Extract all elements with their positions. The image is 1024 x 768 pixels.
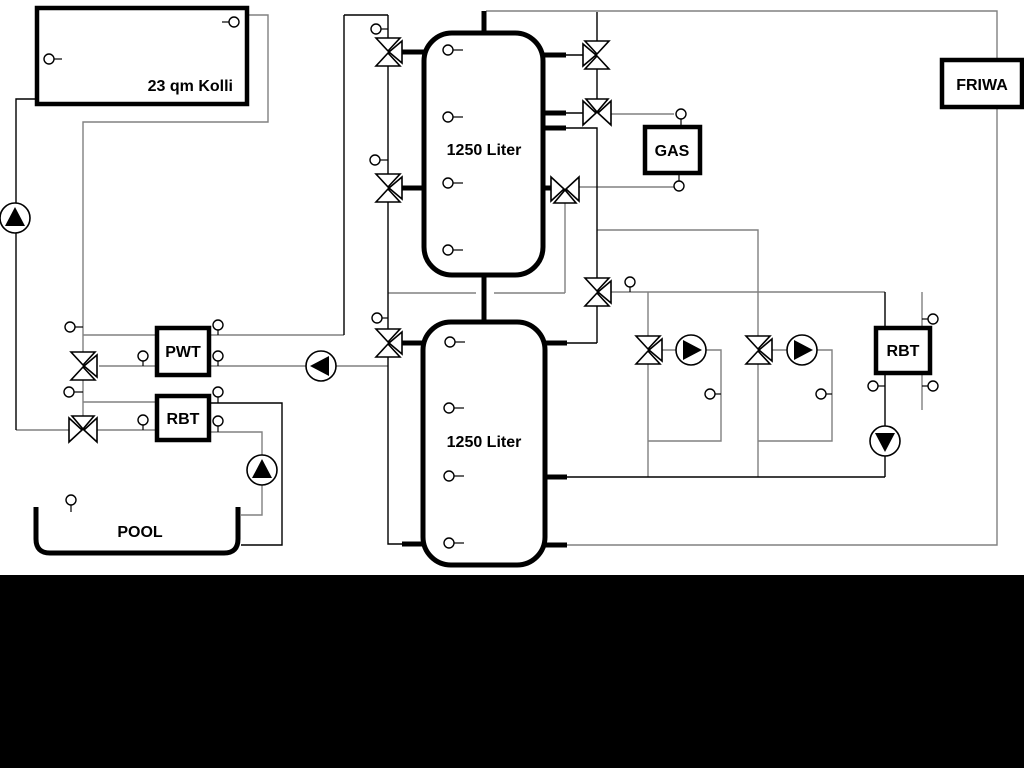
valve-gas-return: [551, 177, 579, 203]
sensor-pwt-left: [138, 351, 148, 366]
pipe-heating-branches: [648, 292, 832, 477]
sensor-rbt-right-top: [213, 387, 223, 403]
valve-tank1-left-mid: [376, 174, 402, 202]
pool-label: POOL: [117, 524, 163, 541]
sensor-rbt-right-bottom: [213, 416, 223, 432]
tank-lower-label: 1250 Liter: [447, 434, 522, 451]
pump-solar: [0, 203, 30, 233]
gas-label: GAS: [655, 143, 690, 160]
sensor-branch2: [816, 389, 832, 399]
friwa-label: FRIWA: [956, 77, 1008, 94]
pipe-heating-supply: [597, 230, 885, 336]
sensor-pwt-right-bottom: [213, 351, 223, 366]
pump-branch1: [676, 335, 706, 365]
pump-rbt-right: [870, 426, 900, 456]
valve-tank2-left-top: [376, 329, 402, 357]
collector-label: 23 qm Kolli: [148, 78, 233, 95]
pipe-pwt-circuit: [83, 335, 388, 366]
pwt-label: PWT: [165, 344, 201, 361]
sensor-pipe-tank2-top: [372, 313, 388, 323]
hydraulic-schematic-page: 23 qm Kolli 1250 Liter 1250 Liter PWT RB…: [0, 0, 1024, 768]
sensor-rbt-right-sec-top: [922, 314, 938, 324]
pipe-collector-flow: [16, 99, 37, 430]
sensor-pipe-tank1-mid: [370, 155, 388, 165]
sensor-rbt-left: [138, 415, 148, 430]
sensor-solar-return-2: [64, 387, 83, 397]
sensor-rbt-right-sec-bottom: [922, 381, 938, 391]
sensor-pipe-tank1-top: [371, 24, 388, 34]
hydraulic-schematic: 23 qm Kolli 1250 Liter 1250 Liter PWT RB…: [0, 0, 1024, 768]
bottom-black-band: [0, 575, 1024, 768]
sensor-gas-bottom: [674, 173, 684, 191]
pipe-tank-left-column: [388, 15, 402, 544]
pipe-friwa-loop: [486, 11, 997, 545]
sensor-gas-top: [676, 109, 686, 127]
sensor-pwt-right-top: [213, 320, 223, 335]
sensor-heating-supply: [625, 277, 635, 292]
valve-tank1-right-top: [583, 41, 609, 69]
sensor-rbt-right-primary: [868, 381, 885, 391]
pump-pwt: [306, 351, 336, 381]
valve-gas-supply: [583, 99, 611, 125]
pump-pool: [247, 455, 277, 485]
valve-heating-mixer: [585, 278, 611, 306]
tank-upper-label: 1250 Liter: [447, 142, 522, 159]
valve-solar-rbt: [69, 416, 97, 442]
sensor-branch1: [705, 389, 721, 399]
sensor-solar-return-1: [65, 322, 83, 332]
valve-tank1-left-top: [376, 38, 402, 66]
pump-branch2: [787, 335, 817, 365]
rbt-left-label: RBT: [167, 411, 200, 428]
valve-branch1-mixer: [636, 336, 662, 364]
pipe-rbt-right-primary: [567, 292, 885, 477]
rbt-right-label: RBT: [887, 343, 920, 360]
valve-solar-pwt: [71, 352, 97, 380]
valve-branch2-mixer: [746, 336, 772, 364]
